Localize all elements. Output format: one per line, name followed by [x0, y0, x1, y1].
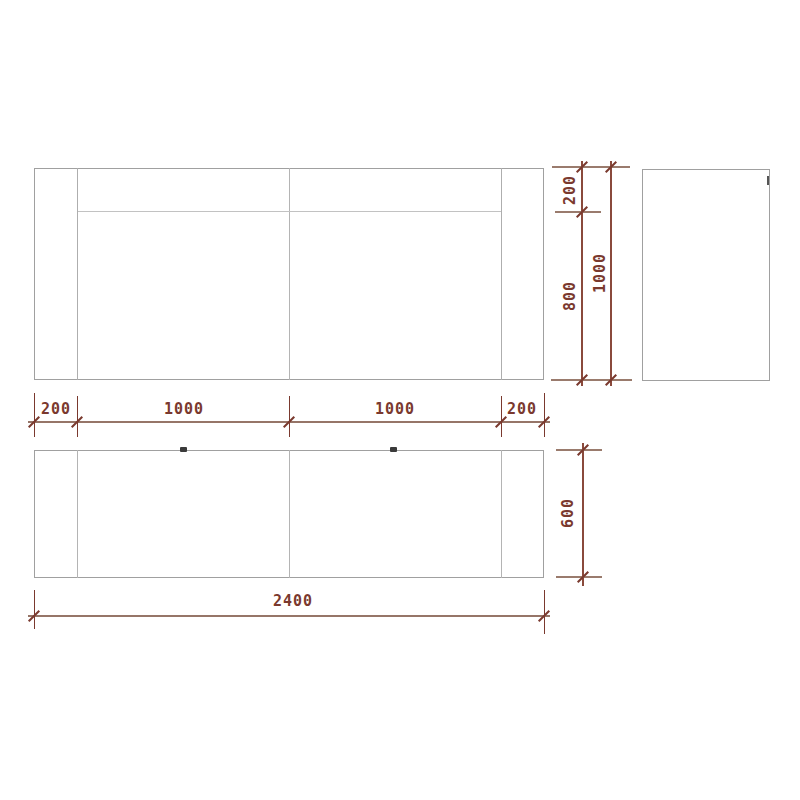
plan-view-hinge-mark-left	[180, 447, 187, 452]
plan-view-hinge-mark-right	[390, 447, 397, 452]
side-view-outline	[642, 169, 770, 381]
side-view-edge-mark	[767, 176, 769, 185]
dimension-line-height-chain	[581, 161, 583, 386]
dimension-line-depth	[582, 443, 584, 586]
extension-line	[501, 396, 502, 437]
front-view-left-panel-divider	[77, 168, 78, 380]
extension-line	[34, 590, 35, 629]
dimension-label-width-seg2: 1000	[164, 400, 204, 418]
dimension-line-total-height	[610, 161, 612, 386]
front-view-right-panel-divider	[501, 168, 502, 380]
extension-line	[77, 396, 78, 437]
dimension-line-total-width	[28, 615, 550, 617]
front-view-top-rail-line	[78, 211, 501, 212]
dimension-label-total-height: 1000	[591, 253, 609, 293]
extension-line	[544, 393, 545, 437]
front-view-center-divider	[289, 168, 290, 380]
dimension-label-width-seg1: 200	[41, 400, 71, 418]
extension-line	[552, 166, 630, 168]
dimension-label-total-width: 2400	[273, 592, 313, 610]
dimension-label-width-seg4: 200	[507, 400, 537, 418]
extension-line	[289, 396, 290, 437]
plan-view-center-divider	[289, 450, 290, 578]
drawing-canvas: 200 1000 1000 200 2400 200 800 1000 600	[0, 0, 800, 800]
plan-view-right-divider	[501, 450, 502, 578]
dimension-label-depth: 600	[559, 498, 577, 528]
extension-line	[551, 379, 632, 381]
dimension-label-height-seg1: 200	[561, 175, 579, 205]
dimension-label-width-seg3: 1000	[375, 400, 415, 418]
extension-line	[34, 393, 35, 437]
dimension-label-height-seg2: 800	[561, 281, 579, 311]
plan-view-left-divider	[77, 450, 78, 578]
